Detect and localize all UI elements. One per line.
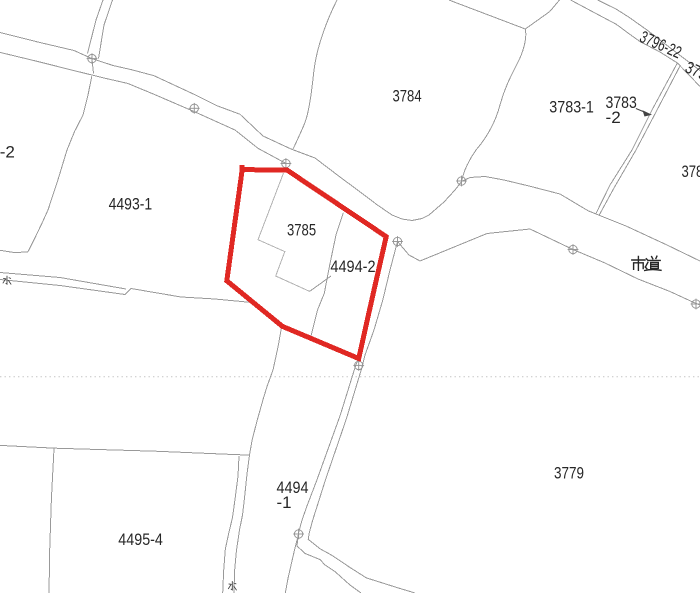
svg-text:-1: -1 <box>277 493 292 512</box>
svg-text:3785: 3785 <box>287 220 316 239</box>
svg-text:3783-1: 3783-1 <box>549 97 594 116</box>
svg-text:3783: 3783 <box>682 162 700 181</box>
svg-text:-2: -2 <box>606 108 621 127</box>
svg-text:4495-4: 4495-4 <box>118 530 163 549</box>
svg-text:4493-1: 4493-1 <box>109 194 153 213</box>
svg-text:-2: -2 <box>0 143 15 162</box>
svg-text:3784: 3784 <box>393 86 422 105</box>
svg-text:4494-2: 4494-2 <box>330 257 375 276</box>
svg-text:3779: 3779 <box>554 464 584 483</box>
